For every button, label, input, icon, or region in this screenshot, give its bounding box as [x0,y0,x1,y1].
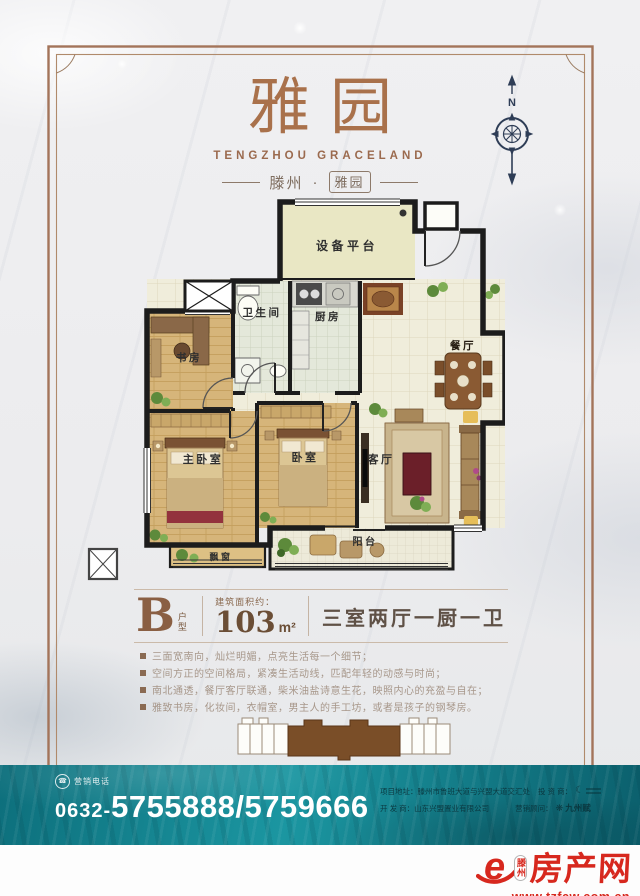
sink-icon [270,365,286,377]
divider-line [222,182,260,183]
elevator-shaft-icon [185,281,233,311]
coffee-table-icon [403,453,431,495]
bullet-icon [140,653,146,659]
consultant-value: 九州赋 [565,803,591,813]
phone-number: 5755888/5759666 [111,789,368,825]
site-name: 房产网 [529,852,633,885]
address-label: 项目地址： [380,787,418,796]
unit-spec: B 户型 建筑面积约： 103m² 三室两厅一厨一卫 [134,589,508,643]
investor-logo: ☾ [575,785,601,797]
area-unit: m² [279,619,296,635]
rooms-summary: 三室两厅一厨一卫 [322,602,506,631]
phone-area-code: 0632- [55,800,111,823]
room-label-bedroom: 卧室 [292,450,319,464]
kitchen-sink-icon [326,283,350,305]
room-label-balcony: 阳台 [353,535,378,548]
brand-header: 雅园 TENGZHOU GRACELAND 滕州 · 雅园 [0,56,640,193]
highlighted-unit [288,720,400,760]
feature-item: 空间方正的空间格局，紧凑生活动线，匹配年轻的动感与时尚； [140,666,510,683]
consultant-label: 营销顾问： [515,804,553,813]
nightstand-icon [332,431,341,440]
unit-type: B 户型 [136,596,189,635]
ac-platform [425,203,457,229]
brand-subtitle: 滕州 · 雅园 [0,171,640,193]
site-logo: e 滕州 房产网 www.tzfcw.com.cn [476,846,632,896]
door-icon [425,231,460,266]
brand-name-boxed: 雅园 [329,171,371,193]
phone-block: ☎ 营销电话 0632- 5755888/5759666 [55,774,369,825]
developer-label: 开 发 商： [380,804,414,813]
project-info: 项目地址： 滕州市鲁班大道与兴盟大道交汇处 投 资 商： ☾ 开 发 商： 山东… [380,785,625,820]
unit-type-letter: B [136,596,175,635]
divider [202,596,203,636]
seal-icon: ❋ [556,803,564,814]
brand-english: TENGZHOU GRACELAND [0,150,640,162]
room-label-study: 书房 [176,351,202,364]
poster: 雅园 TENGZHOU GRACELAND 滕州 · 雅园 N [0,0,640,896]
room-label-master: 主卧室 [183,452,224,466]
bullet-icon [140,704,146,710]
entry-rug-icon [363,283,403,315]
contact-band: ☎ 营销电话 0632- 5755888/5759666 项目地址： 滕州市鲁班… [0,765,640,845]
armchair-icon [395,409,423,422]
window-icon [295,199,400,206]
footer: e 滕州 房产网 www.tzfcw.com.cn [0,845,640,896]
drain-icon [400,210,407,217]
building-key-plan [232,712,456,764]
shower-icon [235,358,260,383]
developer-value: 山东兴盟置业有限公司 [414,804,489,813]
brand-logotype: 雅园 [0,56,640,146]
site-city-pill: 滕州 [514,855,527,881]
lamp-icon [463,411,478,423]
bullet-icon [140,687,146,693]
compass-n-label: N [508,97,516,109]
room-label-baywindow: 飘窗 [209,551,232,562]
feature-list: 三面宽南向，灿烂明媚，点亮生活每一个细节； 空间方正的空间格局，紧凑生活动线，匹… [140,649,510,717]
consultant-logo: ❋ 九州赋 [556,803,591,814]
phone-icon: ☎ [55,774,70,789]
window-icon [144,448,151,513]
room-label-living: 客厅 [367,452,395,466]
divider-line [380,182,418,183]
room-label-bathroom: 卫生间 [243,306,282,319]
nightstand-icon [265,431,274,440]
logo-text-lines [586,788,601,794]
unit-area: 建筑面积约： 103m² [215,595,296,637]
feature-text: 南北通透，餐厅客厅联通，柴米油盐诗意生花，映照内心的充盈与自在； [152,683,488,700]
feature-text: 三面宽南向，灿烂明媚，点亮生活每一个细节； [152,649,373,666]
room-label-kitchen: 厨房 [315,310,341,323]
lounge-chair-icon [310,535,336,555]
brand-dot: · [313,174,320,191]
feature-item: 南北通透，餐厅客厅联通，柴米油盐诗意生花，映照内心的充盈与自在； [140,683,510,700]
unit-type-label: 户型 [178,612,189,636]
site-url: www.tzfcw.com.cn [512,890,630,896]
crescent-icon: ☾ [575,785,584,797]
wardrobe-icon [261,406,331,418]
area-value: 103 [215,605,276,639]
bullet-icon [140,670,146,676]
window-icon [454,525,482,532]
feature-item: 三面宽南向，灿烂明媚，点亮生活每一个细节； [140,649,510,666]
phone-label: 营销电话 [74,776,110,787]
divider [308,596,309,636]
elevator-shaft-icon [89,549,117,579]
brand-city: 滕州 [269,172,303,193]
floorplan: 设备平台 卫生间 厨房 书房 餐厅 主卧室 卧室 客厅 阳台 飘窗 [85,193,505,595]
divider [134,642,508,643]
address-value: 滕州市鲁班大道与兴盟大道交汇处 [418,787,531,796]
wardrobe-icon [151,414,231,427]
compass-icon: N [482,74,542,186]
feature-text: 空间方正的空间格局，紧凑生活动线，匹配年轻的动感与时尚； [152,666,446,683]
room-label-equipment: 设备平台 [316,238,378,253]
investor-label: 投 资 商： [538,787,572,796]
room-label-dining: 餐厅 [449,339,476,352]
